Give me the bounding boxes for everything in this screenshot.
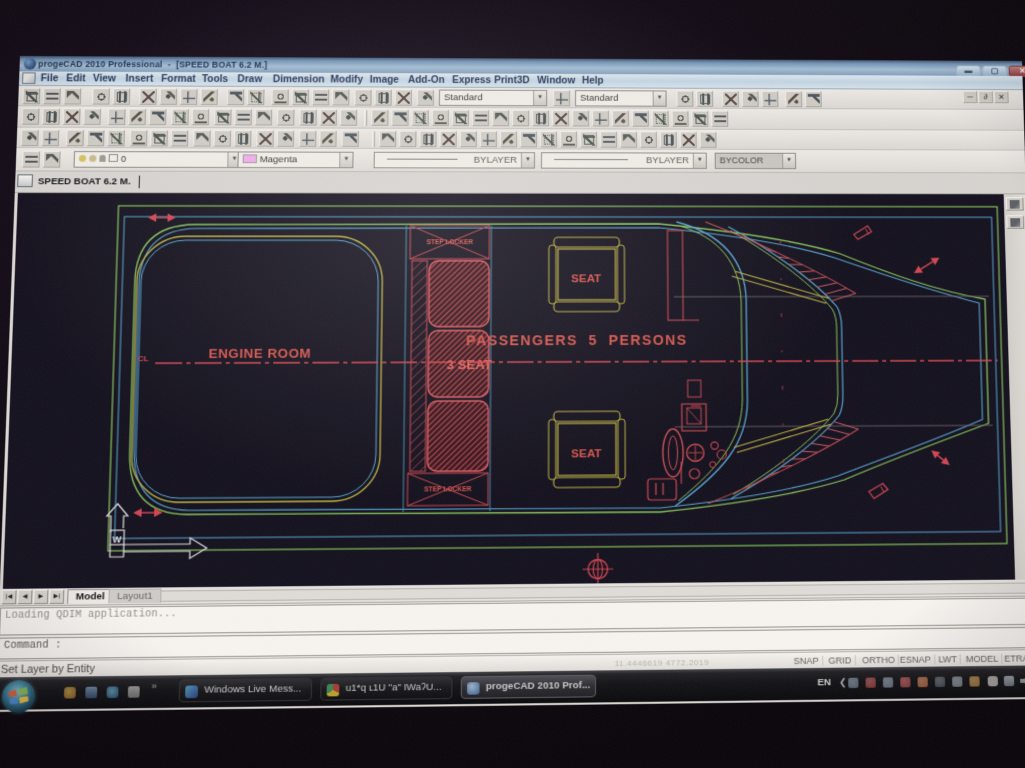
svg-text:ENGINE ROOM: ENGINE ROOM (209, 346, 312, 361)
svg-text:PASSENGERS 5 PERSONS: PASSENGERS 5 PERSONS (466, 332, 688, 348)
svg-text:STEP LOCKER: STEP LOCKER (426, 239, 473, 246)
svg-text:SEAT: SEAT (571, 448, 601, 460)
svg-text:CL: CL (138, 354, 149, 363)
svg-text:STEP LOCKER: STEP LOCKER (424, 486, 472, 493)
svg-text:W: W (112, 534, 122, 544)
svg-text:3 SEAT: 3 SEAT (446, 357, 492, 372)
svg-text:SEAT: SEAT (571, 273, 601, 285)
